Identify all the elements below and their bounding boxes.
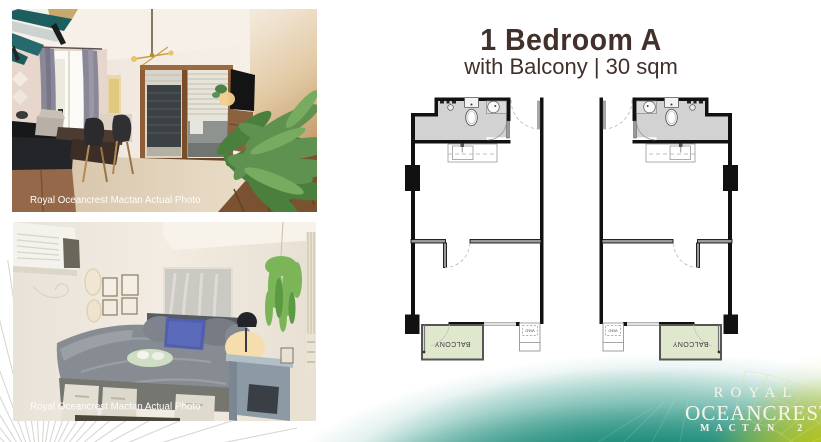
svg-text:BALCONY: BALCONY: [672, 340, 708, 347]
svg-text:W&D: W&D: [525, 328, 534, 333]
svg-text:W&D: W&D: [608, 328, 617, 333]
svg-text:BALCONY: BALCONY: [434, 340, 470, 347]
